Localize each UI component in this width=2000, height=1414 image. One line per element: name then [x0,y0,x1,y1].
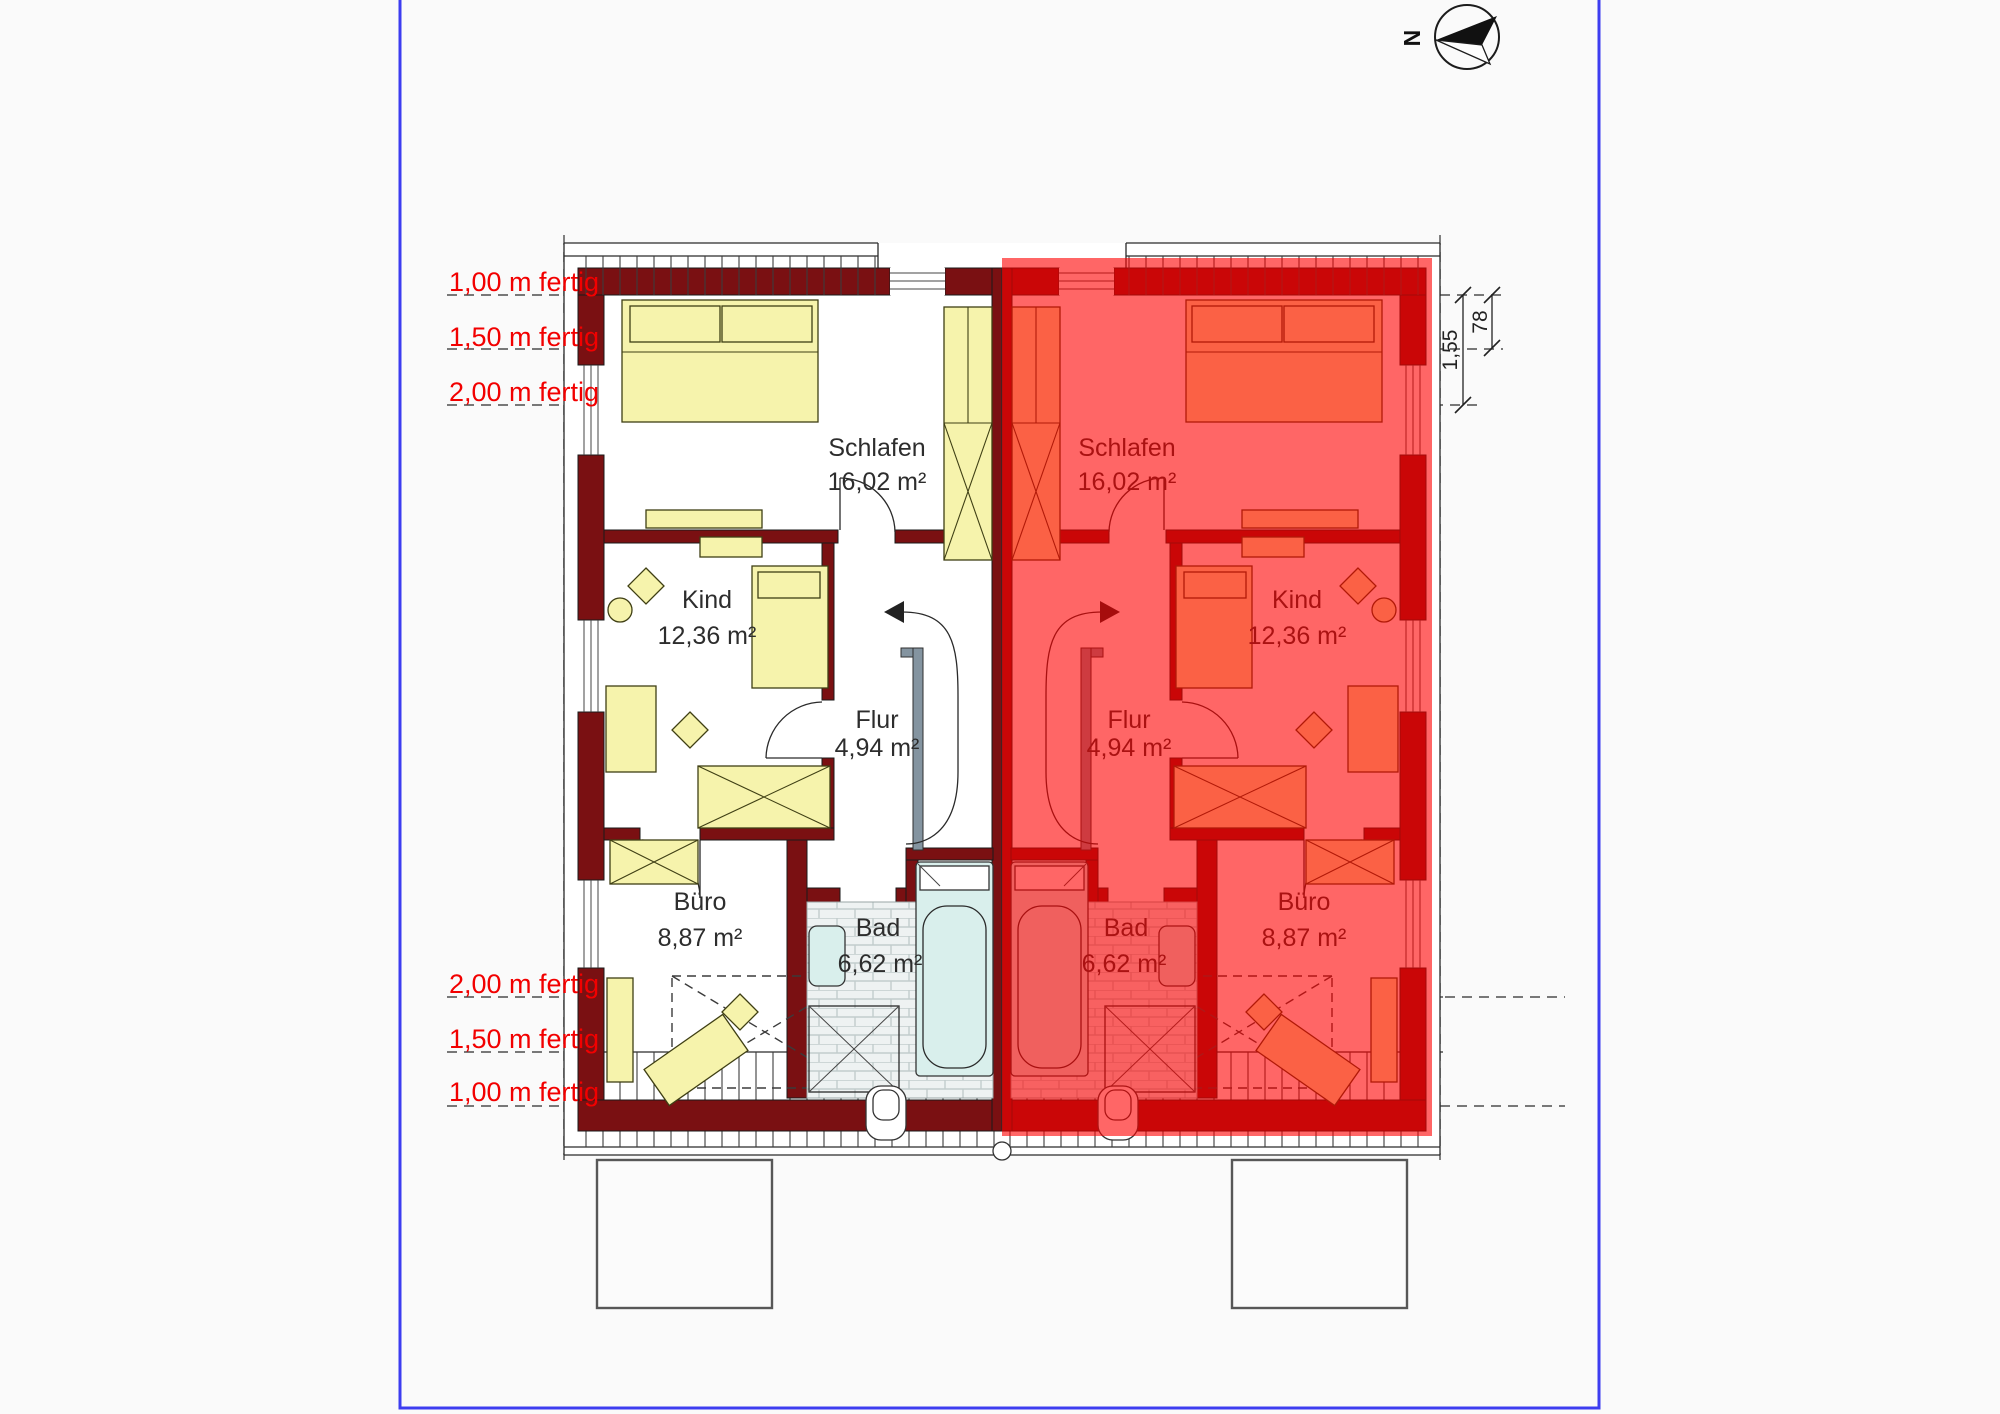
right-unit-highlight-overlay [1002,258,1432,1136]
room-area-flur: 4,94 m² [835,734,920,762]
room-label-bad: Bad [856,914,900,942]
left-unit [564,243,1002,1155]
north-compass-icon: N [1399,5,1499,69]
room-area-buero: 8,87 m² [658,924,743,952]
floor-plan-page: Schlafen 16,02 m² Kind 12,36 m² Flur 4,9… [0,0,2000,1414]
room-label-buero: Büro [674,888,727,916]
height-label-bottom-2: 1,50 m fertig [449,1024,599,1054]
foundation-left [597,1160,772,1308]
height-label-bottom-1: 2,00 m fertig [449,969,599,999]
height-label-top-2: 1,50 m fertig [449,322,599,352]
height-label-top-3: 2,00 m fertig [449,377,599,407]
room-label-flur: Flur [855,706,898,734]
height-label-bottom-3: 1,00 m fertig [449,1077,599,1107]
room-label-schlafen: Schlafen [828,434,925,462]
dimension-155: 1,55 [1439,330,1462,371]
compass-north-label: N [1399,30,1425,47]
room-area-bad: 6,62 m² [838,950,923,978]
room-label-kind: Kind [682,586,732,614]
room-area-kind: 12,36 m² [658,622,757,650]
eaves-marker-circle [993,1142,1011,1160]
foundation-right [1232,1160,1407,1308]
room-area-schlafen: 16,02 m² [828,468,927,496]
floor-plan-drawing: Schlafen 16,02 m² Kind 12,36 m² Flur 4,9… [0,0,2000,1414]
dimension-lines: 78 1,55 [1439,287,1500,413]
dimension-78: 78 [1469,310,1492,333]
height-label-top-1: 1,00 m fertig [449,267,599,297]
